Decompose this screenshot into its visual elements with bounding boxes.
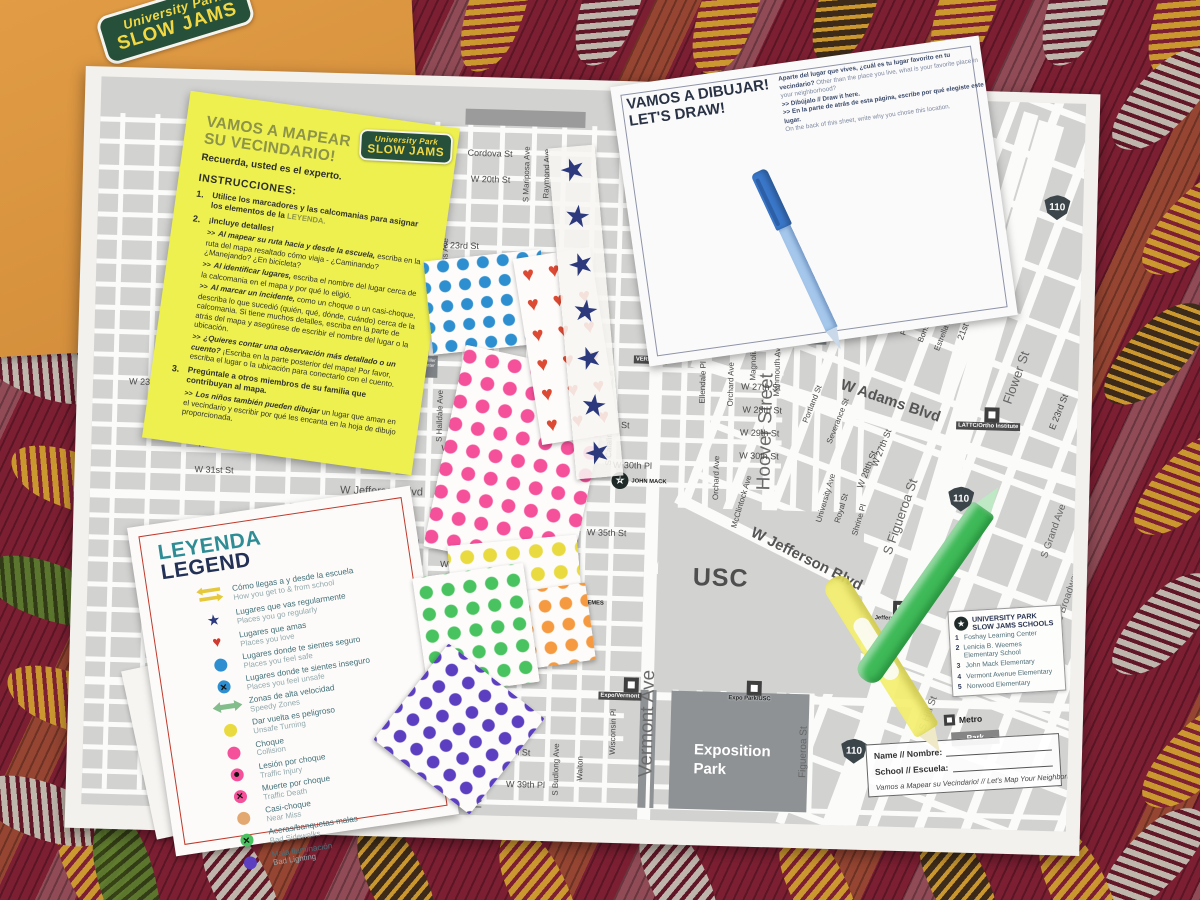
instruction-number: 1. — [194, 189, 209, 210]
street-label: S Mariposa Ave — [522, 146, 532, 202]
street-label: Wisconsin Pl — [609, 709, 618, 755]
legend-icon: ♥ — [202, 632, 232, 654]
metro-station-label: Expo Park/USC — [728, 695, 770, 702]
metro-station-icon — [747, 681, 762, 696]
heart-sticker: ♥ — [521, 264, 536, 286]
instruction-flyer: University Park SLOW JAMS VAMOS A MAPEAR… — [142, 91, 460, 475]
photo-scene: University Park SLOW JAMS Exposition Par… — [0, 0, 1200, 900]
instruction-text: ¡Incluye detalles!>>Al mapear su ruta ha… — [189, 215, 427, 391]
street-label: Orchard Ave — [727, 362, 736, 407]
star-sticker: ★ — [580, 435, 615, 472]
leaf-shape — [1024, 0, 1132, 75]
street-label: S Budlong Ave — [552, 743, 561, 796]
legend-icon: ✕ — [208, 676, 238, 698]
legend-sheet: LEYENDA LEGEND Cómo llegas a y desde la … — [127, 486, 459, 857]
street-label: W 20th St — [471, 175, 511, 185]
legend-icon — [212, 698, 242, 720]
street-label: Vermont Ave — [636, 670, 658, 778]
metro-station-icon — [624, 677, 639, 692]
legend-icon: ✕ — [231, 830, 261, 852]
street-label: W 27th St — [741, 382, 781, 392]
metro-station-label: Expo/Vermont — [598, 692, 641, 701]
leaf-shape — [1095, 34, 1200, 163]
street-label: Orchard Ave — [712, 456, 721, 501]
school-field-label: School // Escuela: — [875, 763, 949, 777]
street-label: W 35th St — [587, 528, 627, 538]
slow-jams-sticker: University Park SLOW JAMS — [359, 129, 454, 165]
legend-icon — [228, 808, 258, 830]
heart-sticker: ♥ — [540, 384, 555, 406]
star-sticker: ★ — [562, 201, 592, 234]
star-sticker: ★ — [570, 295, 600, 328]
heart-sticker: ♥ — [531, 324, 546, 346]
legend-icon — [195, 584, 226, 609]
street-label: W 28th St — [742, 405, 782, 415]
leaf-shape — [1117, 419, 1200, 548]
leaf-shape — [442, 0, 550, 81]
legend-icon — [205, 654, 235, 676]
slow-jams-sticker: University Park SLOW JAMS — [94, 0, 256, 67]
star-sticker: ★ — [564, 246, 599, 283]
usc-label: USC — [692, 563, 749, 594]
street-label: S Halldale Ave — [435, 390, 444, 442]
street-label: W 39th Pl — [506, 780, 545, 790]
star-sticker: ★ — [579, 390, 609, 423]
star-sticker: ★ — [572, 341, 607, 378]
street-label: W 29th St — [740, 428, 780, 438]
street-label: Cordova St — [467, 149, 512, 159]
legend-icon — [218, 742, 248, 764]
star-sticker: ★ — [555, 152, 590, 189]
leaf-shape — [1125, 692, 1200, 821]
draw-sheet: VAMOS A DIBUJAR!LET'S DRAW! Aparte del l… — [610, 35, 1018, 366]
heart-sticker: ♥ — [535, 354, 550, 376]
name-field-line — [946, 741, 1052, 757]
exposition-park-label: Exposition — [694, 741, 771, 760]
legend-icon — [215, 720, 245, 742]
street-label: W 31st St — [194, 465, 233, 475]
street-label: W 30th St — [739, 451, 779, 461]
street-label: Ellendale Pl — [699, 361, 708, 403]
metro-legend: Metro — [944, 713, 983, 726]
street-label: Figueroa St — [798, 726, 809, 778]
school-field-line — [952, 756, 1053, 772]
street-label: Walton — [576, 756, 585, 781]
exposition-park: Exposition Park — [668, 691, 809, 813]
leaf-shape — [1095, 559, 1200, 688]
instruction-item: 2.¡Incluye detalles!>>Al mapear su ruta … — [173, 213, 427, 391]
leaf-shape — [1087, 289, 1200, 418]
star-logo-icon: ★ — [954, 616, 969, 631]
heart-sticker: ♥ — [526, 294, 541, 316]
leaf-shape — [1125, 159, 1200, 288]
leaf-shape — [557, 0, 665, 75]
legend-icon: ★ — [198, 609, 229, 632]
metro-icon — [944, 714, 956, 726]
metro-station-icon — [984, 407, 999, 422]
heart-sticker: ♥ — [545, 414, 560, 436]
legend-icon: ✕ — [225, 786, 255, 808]
building-block — [465, 109, 585, 128]
school-marker-label: JOHN MACK — [631, 478, 666, 485]
legend-icon — [222, 764, 252, 786]
instruction-subitem: >>Los niños también pueden dibujar un lu… — [181, 387, 403, 447]
schools-box: ★ UNIVERSITY PARKSLOW JAMS SCHOOLS 1Fosh… — [947, 605, 1066, 698]
